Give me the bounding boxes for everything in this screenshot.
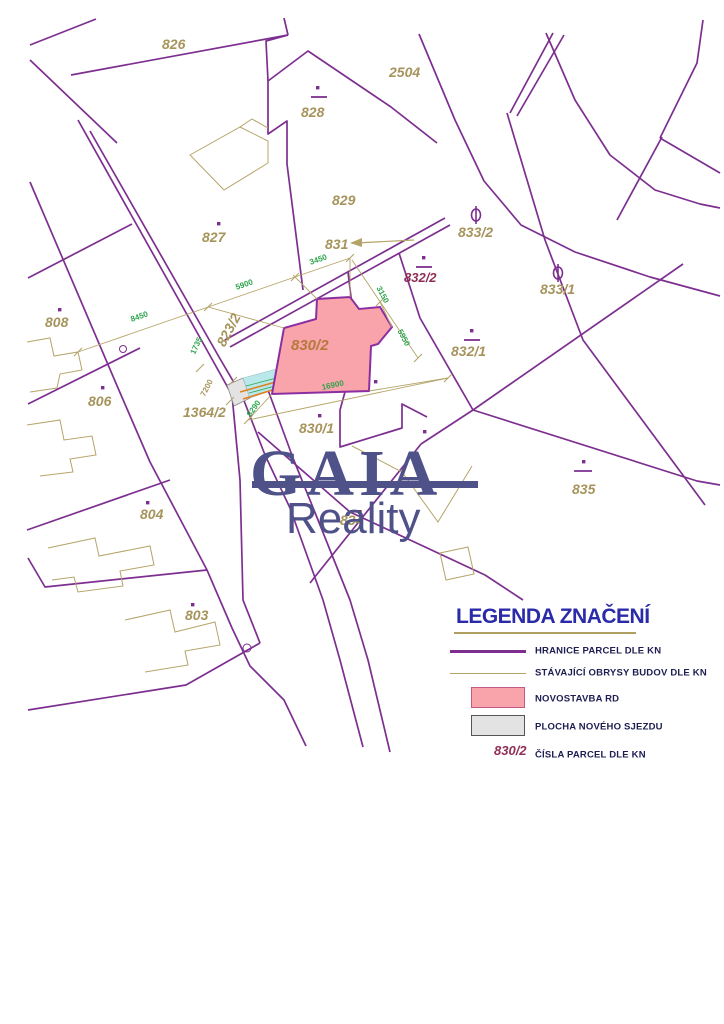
legend-row-hranice: HRANICE PARCEL DLE KN <box>448 640 720 662</box>
direction-arrow-831-icon <box>350 238 414 247</box>
dimension-ticks <box>74 254 452 424</box>
parcel-label-803: 803 <box>185 608 208 622</box>
parcel-label-827: 827 <box>202 230 225 244</box>
legend: LEGENDA ZNAČENÍ HRANICE PARCEL DLE KN ST… <box>448 604 720 768</box>
theta-icon-833-2 <box>472 206 481 224</box>
legend-label: STÁVAJÍCÍ OBRYSY BUDOV DLE KN <box>535 668 707 679</box>
new-house-footprint <box>272 297 392 394</box>
parcel-label-808: 808 <box>45 315 68 329</box>
parcel-number-swatch: 830/2 <box>494 743 527 758</box>
parcel-label-832-2: 832/2 <box>404 271 437 284</box>
legend-row-cisla: 830/2 ČÍSLA PARCEL DLE KN <box>448 742 720 768</box>
parcel-label-835: 835 <box>572 482 595 496</box>
parcel-label-806: 806 <box>88 394 111 408</box>
gaia-reality-logo: GAIA Reality <box>250 441 490 541</box>
parcel-label-828: 828 <box>301 105 324 119</box>
legend-label: ČÍSLA PARCEL DLE KN <box>535 750 646 761</box>
parcel-label-826: 826 <box>162 37 185 51</box>
logo-crossbar <box>252 481 478 488</box>
parcel-label-830-2: 830/2 <box>291 338 329 353</box>
theta-icons <box>472 206 563 282</box>
legend-title-underline <box>454 632 636 634</box>
parcel-label-833-1: 833/1 <box>540 282 575 296</box>
legend-label: NOVOSTAVBA RD <box>535 694 619 705</box>
parcel-label-1364-2: 1364/2 <box>183 405 226 419</box>
parcel-label-829: 829 <box>332 193 355 207</box>
legend-title: LEGENDA ZNAČENÍ <box>448 604 720 629</box>
legend-row-novostavba: NOVOSTAVBA RD <box>448 686 720 712</box>
parcel-label-830-1: 830/1 <box>299 421 334 435</box>
grey-box-swatch <box>471 715 525 736</box>
dimension-lines <box>74 254 452 424</box>
parcel-label-804: 804 <box>140 507 163 521</box>
legend-label: HRANICE PARCEL DLE KN <box>535 646 661 657</box>
legend-label: PLOCHA NOVÉHO SJEZDU <box>535 722 663 733</box>
parcel-label-833-2: 833/2 <box>458 225 493 239</box>
legend-row-sjezd: PLOCHA NOVÉHO SJEZDU <box>448 714 720 740</box>
parcel-label-831: 831 <box>325 237 348 251</box>
cadastral-map-page: 826 2504 828 827 829 831 833/2 833/1 832… <box>0 0 724 1024</box>
parcel-label-832-1: 832/1 <box>451 344 486 358</box>
parcel-label-2504: 2504 <box>389 65 420 79</box>
legend-row-obrysy: STÁVAJÍCÍ OBRYSY BUDOV DLE KN <box>448 662 720 684</box>
olive-line-swatch <box>450 673 526 674</box>
purple-line-swatch <box>450 650 526 653</box>
pink-box-swatch <box>471 687 525 708</box>
logo-wordmark: GAIA <box>250 441 490 507</box>
